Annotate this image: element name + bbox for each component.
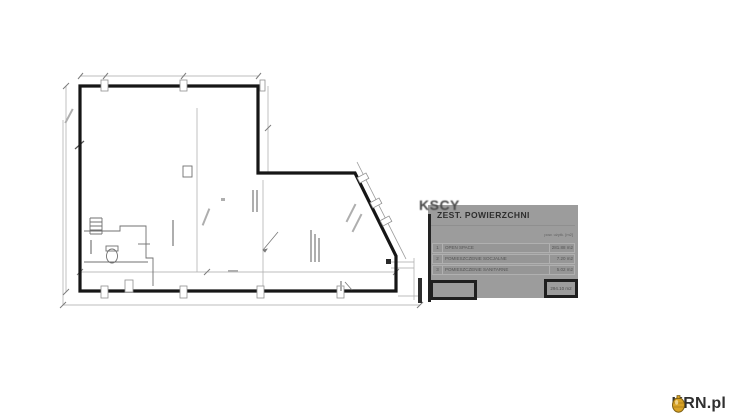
row-name: OPEN SPACE bbox=[443, 244, 549, 252]
sanitary-fixtures bbox=[84, 166, 192, 286]
area-table-panel: ZEST. POWIERZCHNI pow. użytk. [m2] 1 OPE… bbox=[428, 205, 578, 298]
door-hinge-marks bbox=[386, 259, 422, 303]
micro-text-marks bbox=[64, 108, 362, 291]
row-number: 3 bbox=[433, 266, 443, 274]
row-area: 281.88 m2 bbox=[549, 244, 574, 252]
table-row: 1 OPEN SPACE 281.88 m2 bbox=[432, 243, 575, 253]
table-row: 2 POMIESZCZENIE SOCJALNE 7.20 m2 bbox=[432, 254, 575, 264]
title-divider bbox=[431, 225, 575, 226]
table-rows: 1 OPEN SPACE 281.88 m2 2 POMIESZCZENIE S… bbox=[432, 243, 575, 276]
row-area: 7.20 m2 bbox=[549, 255, 574, 263]
row-name: POMIESZCZENIE SANITARNE bbox=[443, 266, 549, 274]
row-number: 2 bbox=[433, 255, 443, 263]
window-symbols bbox=[101, 80, 392, 298]
krn-logo: KRN.pl bbox=[671, 395, 726, 413]
table-row: 3 POMIESZCZENIE SANITARNE 5.02 m2 bbox=[432, 265, 575, 275]
stamp-box bbox=[430, 280, 477, 300]
screenshot-root: KSCY ZEST. POWIERZCHNI pow. użytk. [m2] … bbox=[0, 0, 740, 419]
annotation-leaders bbox=[263, 232, 352, 290]
total-area-value: 294.10 m2 bbox=[544, 279, 578, 298]
row-number: 1 bbox=[433, 244, 443, 252]
row-name: POMIESZCZENIE SOCJALNE bbox=[443, 255, 549, 263]
krn-logo-icon bbox=[671, 395, 686, 413]
dimension-ticks bbox=[60, 73, 423, 308]
outer-walls bbox=[80, 86, 396, 291]
table-unit-header: pow. użytk. [m2] bbox=[544, 232, 573, 237]
dimension-lines bbox=[63, 76, 420, 305]
floor-plan bbox=[0, 0, 740, 419]
watermark-text: KSCY bbox=[419, 197, 460, 213]
row-area: 5.02 m2 bbox=[549, 266, 574, 274]
